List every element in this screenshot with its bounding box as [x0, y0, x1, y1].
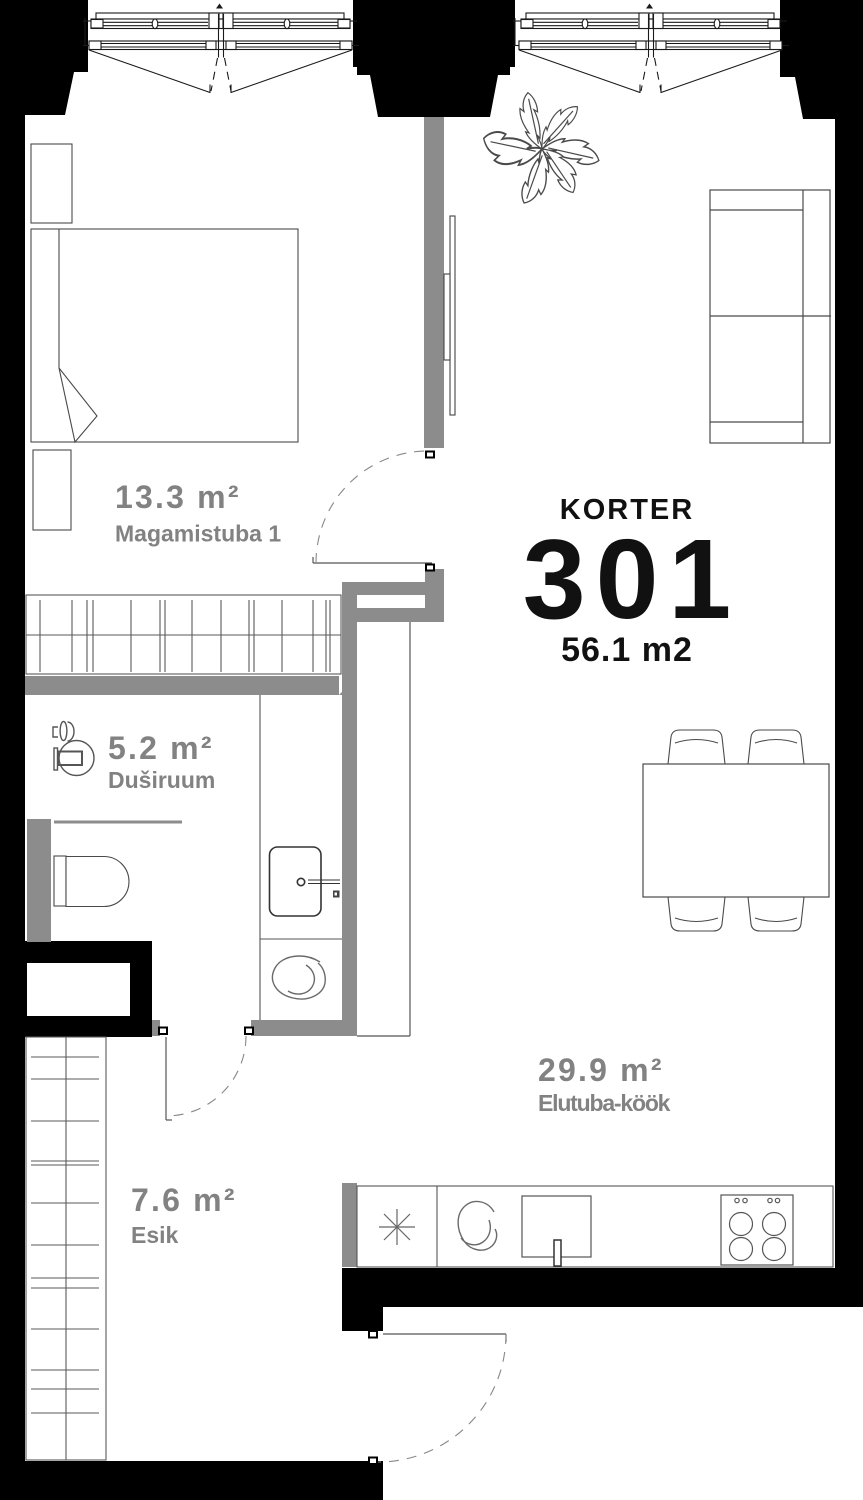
svg-text:301: 301 — [523, 516, 742, 642]
svg-text:5.2 m²: 5.2 m² — [108, 730, 214, 766]
svg-text:Magamistuba 1: Magamistuba 1 — [115, 521, 281, 547]
svg-text:Duširuum: Duširuum — [108, 767, 215, 793]
svg-text:Elutuba-köök: Elutuba-köök — [538, 1090, 671, 1116]
svg-text:Esik: Esik — [131, 1222, 179, 1248]
svg-text:29.9 m²: 29.9 m² — [538, 1052, 664, 1088]
svg-text:7.6 m²: 7.6 m² — [131, 1182, 237, 1218]
svg-text:13.3 m²: 13.3 m² — [115, 479, 241, 515]
svg-text:56.1 m2: 56.1 m2 — [561, 631, 693, 669]
